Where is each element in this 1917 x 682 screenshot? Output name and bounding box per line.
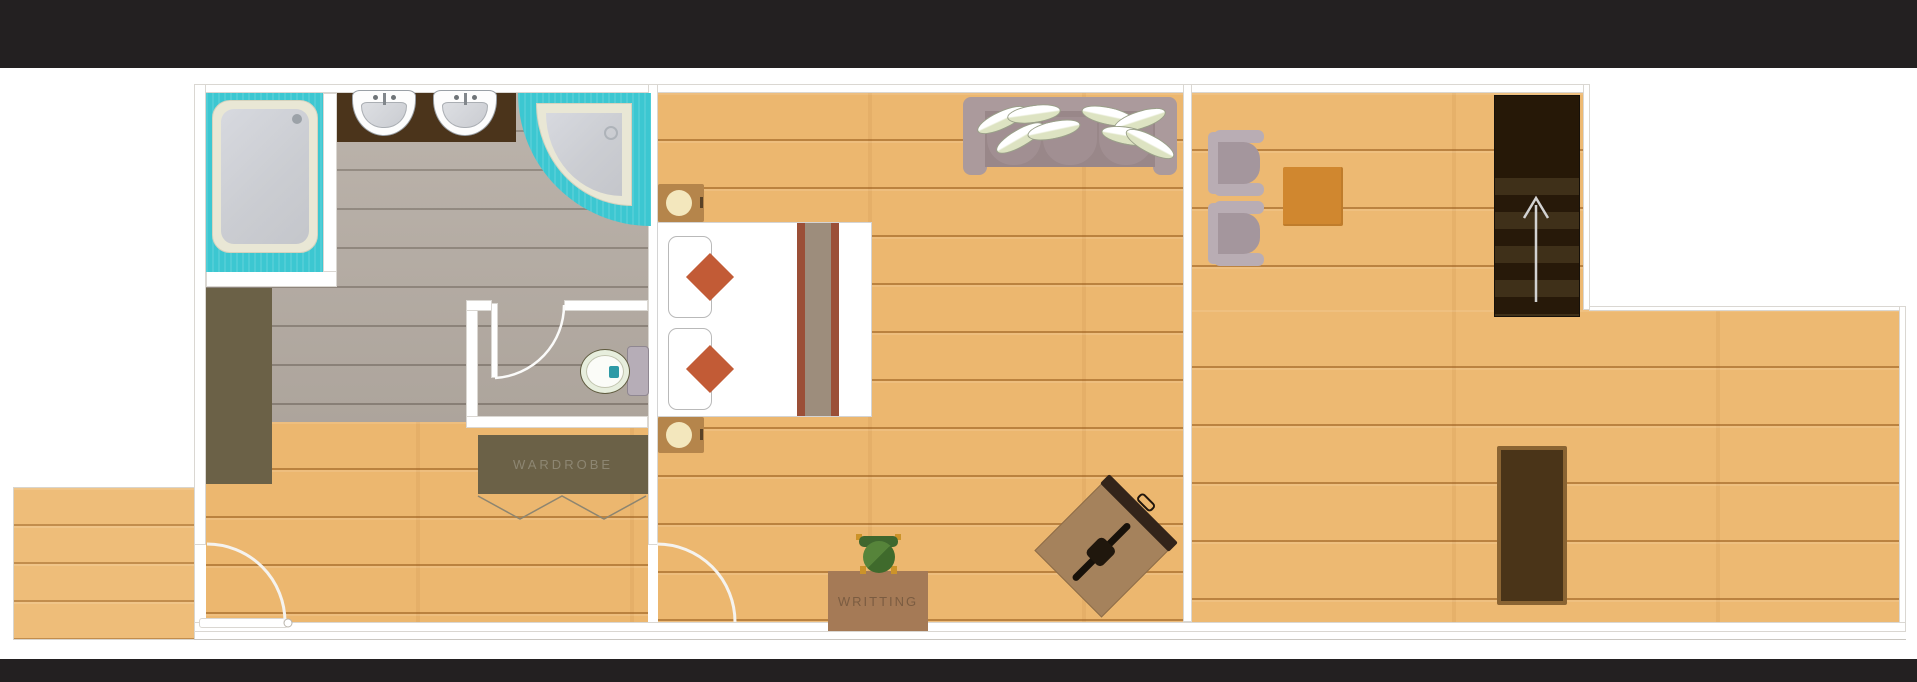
wardrobe[interactable]: WARDROBE <box>478 435 648 494</box>
stair-treads <box>1495 178 1579 316</box>
toilet-flush-icon <box>609 366 619 378</box>
lamp-icon <box>666 190 692 216</box>
shower-drain-icon <box>292 114 302 124</box>
armchair-seat <box>1218 213 1260 254</box>
faucet-handle-icon <box>373 95 378 100</box>
side-table[interactable] <box>1283 167 1343 226</box>
armchair-1[interactable] <box>1208 130 1265 196</box>
sofa[interactable] <box>963 97 1177 175</box>
sofa-armrest <box>963 100 987 175</box>
writing-desk-label: WRITTING <box>838 594 918 609</box>
faucet-handle-icon <box>454 95 459 100</box>
wall-step-north <box>1589 306 1906 311</box>
wall-west <box>194 84 206 545</box>
desk-chair[interactable] <box>863 541 895 573</box>
writing-desk[interactable]: WRITTING <box>828 571 928 631</box>
bed-runner-stripe <box>797 223 805 416</box>
stairs-up[interactable] <box>1494 95 1580 317</box>
wall-shower-south <box>206 271 337 287</box>
toilet-door[interactable] <box>491 303 498 378</box>
toilet-tank <box>627 346 649 396</box>
bottom-letterbox-bar <box>0 659 1917 682</box>
shower-drain-icon <box>604 126 618 140</box>
wall-toilet-north-b <box>564 300 648 311</box>
lamp-icon <box>666 422 692 448</box>
wardrobe-label: WARDROBE <box>513 457 613 472</box>
wall-toilet-north-a <box>466 300 492 311</box>
armchair-armrest <box>1214 253 1264 266</box>
faucet-icon <box>464 93 467 105</box>
armchair-seat <box>1218 142 1260 184</box>
faucet-handle-icon <box>391 95 396 100</box>
wall-east-upper <box>1583 84 1590 310</box>
sink-basin <box>361 102 407 128</box>
square-shower[interactable] <box>212 100 318 253</box>
wall-east-lower <box>1899 306 1906 632</box>
entry-door[interactable] <box>199 618 288 628</box>
wall-south <box>194 622 1906 632</box>
bed[interactable] <box>657 222 872 417</box>
faucet-icon <box>383 93 386 105</box>
armchair-armrest <box>1214 183 1264 196</box>
wall-toilet-south <box>466 416 648 428</box>
drawer-knob-icon <box>700 429 703 440</box>
chair-foot-icon <box>891 566 897 574</box>
toilet[interactable] <box>580 349 630 394</box>
drawer-knob-icon <box>700 197 703 208</box>
top-letterbox-bar <box>0 0 1917 68</box>
armchair-2[interactable] <box>1208 201 1265 266</box>
wall-bedroom-living <box>1183 84 1192 622</box>
sink-basin <box>442 102 488 128</box>
faucet-handle-icon <box>472 95 477 100</box>
bed-runner <box>805 223 831 416</box>
console-desk[interactable] <box>1497 446 1567 605</box>
nightstand-bottom[interactable] <box>658 417 704 453</box>
nightstand-top[interactable] <box>658 184 704 222</box>
wall-toilet-west <box>466 300 478 428</box>
bed-runner-stripe <box>831 223 839 416</box>
chair-foot-icon <box>860 566 866 574</box>
shower-tray-base <box>221 109 309 244</box>
bathroom-bench[interactable] <box>206 288 272 484</box>
plan-outer-border <box>194 639 1906 640</box>
wall-shower-vanity <box>323 93 337 274</box>
terrace-floor <box>13 487 195 640</box>
